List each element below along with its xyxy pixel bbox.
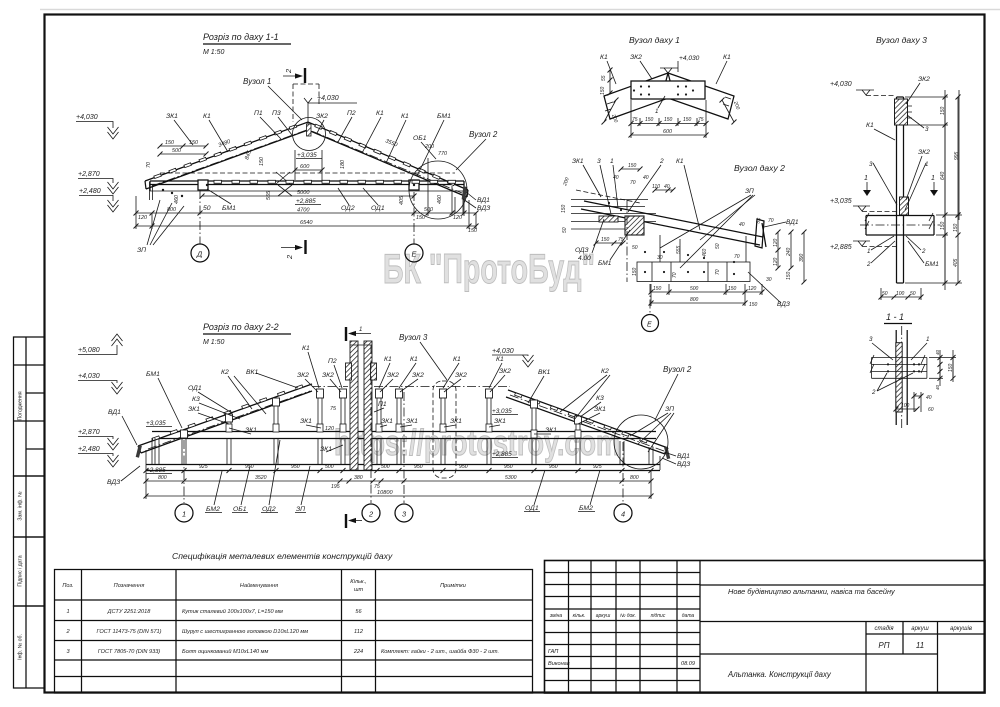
svg-text:ВДЗ: ВДЗ: [677, 461, 691, 468]
svg-text:ЗК1: ЗК1: [166, 113, 178, 120]
svg-text:ЗК2: ЗК2: [918, 149, 930, 156]
svg-text:К1: К1: [203, 113, 211, 120]
svg-text:150: 150: [940, 221, 946, 230]
svg-text:4700: 4700: [297, 208, 310, 214]
svg-text:+4,030: +4,030: [78, 373, 100, 380]
svg-text:№ док.: № док.: [620, 613, 636, 619]
svg-text:ВД1: ВД1: [108, 409, 121, 416]
svg-text:ЗП: ЗП: [137, 247, 146, 254]
svg-text:120: 120: [773, 238, 779, 247]
svg-text:Найменування: Найменування: [240, 582, 278, 589]
svg-text:70: 70: [146, 162, 152, 168]
svg-text:Інф. № об.: Інф. № об.: [18, 634, 24, 660]
svg-text:РП: РП: [878, 641, 889, 650]
svg-text:ЗК1: ЗК1: [572, 158, 584, 165]
svg-text:Поз.: Поз.: [62, 583, 73, 589]
svg-text:75: 75: [618, 237, 624, 243]
svg-text:К1: К1: [384, 356, 392, 363]
svg-text:ОД1: ОД1: [371, 205, 385, 212]
svg-text:ВК1: ВК1: [246, 369, 259, 376]
svg-text:500: 500: [172, 148, 181, 154]
svg-text:500: 500: [690, 286, 699, 292]
svg-text:4: 4: [621, 510, 625, 519]
svg-text:ЗК1: ЗК1: [406, 418, 418, 425]
svg-text:150: 150: [645, 117, 654, 123]
svg-text:150: 150: [749, 302, 758, 308]
svg-text:+3,035: +3,035: [830, 198, 852, 205]
svg-text:120: 120: [138, 215, 147, 221]
svg-text:+3,035: +3,035: [492, 408, 512, 415]
svg-text:3: 3: [869, 336, 873, 343]
svg-text:40: 40: [935, 349, 940, 355]
svg-text:ГАП: ГАП: [548, 649, 559, 655]
svg-text:100: 100: [901, 403, 910, 409]
svg-text:+5,080: +5,080: [78, 347, 100, 354]
svg-text:П2: П2: [347, 110, 356, 117]
svg-text:К2: К2: [221, 369, 229, 376]
svg-text:150: 150: [468, 228, 477, 234]
svg-text:3: 3: [66, 649, 70, 655]
svg-text:150: 150: [653, 286, 662, 292]
svg-text:ГОСТ 7805-70 (DIN 933): ГОСТ 7805-70 (DIN 933): [98, 649, 160, 655]
svg-text:ЗК1: ЗК1: [545, 427, 557, 434]
svg-text:5000: 5000: [297, 190, 310, 196]
svg-text:1: 1: [867, 248, 870, 255]
svg-text:ЗК1: ЗК1: [300, 418, 312, 425]
svg-text:460: 460: [174, 195, 180, 204]
svg-text:ЗК2: ЗК2: [322, 372, 334, 379]
svg-text:30: 30: [657, 255, 663, 261]
svg-text:500: 500: [381, 464, 390, 470]
svg-text:М 1:50: М 1:50: [203, 339, 225, 346]
svg-text:ЗК2: ЗК2: [412, 372, 424, 379]
svg-text:70: 70: [672, 272, 678, 278]
svg-text:Вузол даху 1: Вузол даху 1: [629, 35, 680, 45]
svg-text:500: 500: [424, 207, 433, 213]
svg-text:380: 380: [354, 475, 363, 481]
svg-text:шт: шт: [354, 587, 364, 593]
svg-text:3: 3: [925, 126, 929, 133]
svg-text:ОД2: ОД2: [262, 506, 276, 513]
svg-text:150: 150: [259, 157, 265, 166]
svg-text:180: 180: [340, 160, 346, 169]
svg-text:Вузол 2: Вузол 2: [469, 130, 498, 139]
svg-text:195: 195: [331, 484, 340, 490]
svg-text:Розріз по даху 1-1: Розріз по даху 1-1: [203, 32, 279, 42]
svg-text:ВД1: ВД1: [677, 453, 690, 460]
svg-text:+2,870: +2,870: [78, 171, 100, 178]
svg-text:Вузол 1: Вузол 1: [243, 77, 271, 86]
svg-text:75: 75: [330, 406, 337, 412]
svg-text:Вузол даху 3: Вузол даху 3: [876, 35, 927, 45]
svg-text:ЗК1: ЗК1: [450, 418, 462, 425]
svg-text:800: 800: [158, 475, 167, 481]
svg-text:460: 460: [437, 195, 443, 204]
svg-text:Шуруп с шестигранною головкою: Шуруп с шестигранною головкою D10хL120 м…: [182, 629, 308, 635]
svg-text:40: 40: [739, 222, 745, 228]
svg-text:150: 150: [561, 204, 567, 213]
svg-text:40: 40: [935, 384, 940, 390]
svg-text:75: 75: [698, 117, 704, 123]
svg-text:К1: К1: [302, 345, 310, 352]
svg-text:Е: Е: [412, 250, 417, 259]
svg-text:150: 150: [683, 117, 692, 123]
svg-text:ГОСТ 11473-75 (DIN 571): ГОСТ 11473-75 (DIN 571): [96, 629, 161, 635]
svg-text:2: 2: [65, 629, 70, 635]
svg-text:1: 1: [66, 609, 69, 615]
svg-text:Комплект: гайки - 2 шт., шайба: Комплект: гайки - 2 шт., шайба Ф30 - 2 ш…: [381, 648, 499, 655]
svg-text:30: 30: [766, 277, 772, 283]
svg-text:ЗП: ЗП: [745, 188, 754, 195]
svg-text:Зам. інф. №: Зам. інф. №: [18, 491, 24, 521]
svg-text:150: 150: [601, 237, 610, 243]
svg-text:1: 1: [359, 327, 362, 333]
svg-text:ЗК2: ЗК2: [455, 372, 467, 379]
svg-text:120: 120: [773, 257, 779, 266]
svg-text:+4,030: +4,030: [76, 114, 98, 121]
svg-text:1: 1: [926, 336, 929, 343]
svg-text:120: 120: [453, 215, 462, 221]
svg-text:ОД1: ОД1: [525, 505, 539, 512]
svg-text:460: 460: [702, 248, 708, 257]
svg-text:Підпис і дата: Підпис і дата: [18, 555, 24, 586]
svg-text:240: 240: [786, 247, 792, 257]
svg-text:Специфікація металевих елемент: Специфікація металевих елементів констру…: [172, 551, 393, 561]
svg-text:ЗК1: ЗК1: [381, 418, 393, 425]
svg-text:3: 3: [597, 158, 601, 165]
svg-text:150: 150: [628, 163, 637, 169]
svg-text:4.00: 4.00: [578, 255, 591, 262]
svg-text:+4,030: +4,030: [679, 55, 700, 62]
svg-text:200: 200: [732, 100, 741, 111]
svg-text:600: 600: [663, 129, 672, 135]
svg-text:56: 56: [355, 609, 362, 615]
svg-text:2: 2: [285, 254, 294, 260]
svg-text:Кутик сталевий 100х100х7, L=15: Кутик сталевий 100х100х7, L=150 мм: [182, 608, 283, 615]
svg-text:БМ2: БМ2: [206, 506, 220, 513]
svg-text:995: 995: [954, 151, 960, 160]
svg-text:Е: Е: [647, 322, 652, 329]
svg-text:К1: К1: [676, 158, 684, 165]
svg-text:950: 950: [459, 464, 468, 470]
svg-text:+4,030: +4,030: [492, 348, 514, 355]
svg-text:950: 950: [504, 464, 513, 470]
svg-text:08.09: 08.09: [681, 661, 695, 667]
svg-text:390: 390: [799, 253, 805, 262]
svg-text:800: 800: [690, 297, 699, 303]
svg-text:950: 950: [291, 464, 300, 470]
svg-text:ЗК1: ЗК1: [188, 406, 200, 413]
svg-text:П3: П3: [272, 110, 281, 117]
svg-text:ВД1: ВД1: [786, 219, 799, 226]
svg-text:+2,885: +2,885: [492, 451, 512, 458]
svg-text:150: 150: [600, 86, 606, 95]
svg-text:Альтанка. Конструкції даху: Альтанка. Конструкції даху: [727, 670, 832, 679]
svg-text:ОБ1: ОБ1: [233, 506, 247, 513]
svg-text:112: 112: [354, 629, 364, 635]
svg-text:60: 60: [928, 407, 934, 413]
svg-text:аркуш: аркуш: [911, 626, 929, 632]
svg-text:50: 50: [632, 245, 638, 251]
svg-text:3: 3: [869, 161, 873, 168]
svg-text:150: 150: [664, 117, 673, 123]
svg-text:БМ1: БМ1: [598, 260, 612, 267]
svg-text:Примітки: Примітки: [440, 583, 466, 589]
svg-text:950: 950: [245, 464, 254, 470]
svg-text:5300: 5300: [505, 475, 517, 481]
svg-text:925: 925: [199, 464, 208, 470]
svg-text:150: 150: [728, 286, 737, 292]
svg-text:405: 405: [399, 195, 405, 205]
svg-text:ОД2: ОД2: [341, 205, 355, 212]
svg-text:75: 75: [632, 117, 638, 123]
svg-text:ЗК2: ЗК2: [387, 372, 399, 379]
svg-text:2: 2: [659, 158, 664, 165]
svg-text:40: 40: [664, 184, 670, 190]
svg-text:Вузол 3: Вузол 3: [399, 333, 428, 342]
svg-text:К1: К1: [376, 110, 384, 117]
svg-text:К1: К1: [723, 54, 731, 61]
svg-text:ЗП: ЗП: [296, 506, 305, 513]
svg-text:50: 50: [715, 243, 721, 249]
svg-text:2: 2: [284, 68, 293, 74]
svg-text:+2,885: +2,885: [830, 244, 852, 251]
svg-text:К3: К3: [192, 396, 200, 403]
svg-text:50: 50: [910, 291, 916, 297]
svg-text:Виконав: Виконав: [548, 661, 570, 667]
svg-text:БМ1: БМ1: [222, 205, 236, 212]
svg-text:Кільк.,: Кільк.,: [350, 579, 366, 585]
svg-text:ВД1: ВД1: [477, 197, 490, 204]
svg-text:стадія: стадія: [874, 626, 894, 632]
svg-text:дата: дата: [682, 613, 695, 619]
svg-text:БМ1: БМ1: [925, 261, 939, 268]
svg-text:К1: К1: [453, 356, 461, 363]
svg-text:+3,035: +3,035: [297, 152, 317, 159]
svg-text:К1: К1: [600, 54, 608, 61]
svg-text:ВДЗ: ВДЗ: [777, 301, 790, 308]
svg-text:ЗК1: ЗК1: [594, 406, 606, 413]
svg-text:150: 150: [189, 140, 198, 146]
svg-text:120: 120: [325, 426, 334, 432]
svg-text:150: 150: [632, 267, 638, 276]
svg-text:770: 770: [438, 151, 447, 157]
svg-text:+2,480: +2,480: [78, 446, 100, 453]
svg-text:+2,480: +2,480: [79, 188, 101, 195]
svg-text:200: 200: [424, 144, 434, 150]
svg-text:600: 600: [300, 164, 310, 170]
svg-text:200: 200: [610, 113, 619, 124]
svg-text:ДСТУ 2251:2018: ДСТУ 2251:2018: [107, 609, 152, 615]
svg-text:70: 70: [715, 269, 721, 275]
svg-text:1: 1: [864, 175, 868, 182]
svg-text:150: 150: [940, 106, 946, 115]
svg-text:зміна: зміна: [549, 613, 563, 619]
svg-text:кільк.: кільк.: [573, 613, 586, 619]
svg-text:+2,870: +2,870: [78, 429, 100, 436]
svg-text:ЗК2: ЗК2: [630, 54, 642, 61]
svg-text:+2,885: +2,885: [296, 198, 316, 205]
svg-text:Вузол даху 2: Вузол даху 2: [734, 163, 785, 173]
svg-text:40: 40: [926, 395, 932, 401]
svg-text:ЗК2: ЗК2: [918, 76, 930, 83]
svg-text:100: 100: [896, 291, 905, 297]
svg-text:40: 40: [643, 175, 649, 181]
svg-text:1: 1: [931, 175, 935, 182]
svg-text:55: 55: [601, 75, 607, 81]
svg-text:10800: 10800: [377, 490, 393, 496]
svg-text:ЗК2: ЗК2: [297, 372, 309, 379]
svg-text:Болт оцинкований М10хL140 мм: Болт оцинкований М10хL140 мм: [182, 648, 269, 655]
svg-text:ЗК1: ЗК1: [494, 418, 506, 425]
svg-text:К1: К1: [866, 122, 874, 129]
svg-text:1: 1: [610, 158, 614, 165]
svg-text:1: 1: [655, 108, 658, 115]
svg-text:Вузол 2: Вузол 2: [663, 365, 692, 374]
svg-text:70: 70: [768, 218, 774, 224]
svg-text:50: 50: [562, 227, 568, 233]
svg-text:500: 500: [325, 464, 334, 470]
svg-text:2: 2: [921, 248, 926, 255]
svg-text:2: 2: [368, 510, 373, 519]
svg-text:ВДЗ: ВДЗ: [107, 479, 121, 486]
svg-text:70: 70: [630, 180, 636, 186]
svg-text:925: 925: [593, 464, 602, 470]
svg-text:П1: П1: [378, 401, 387, 408]
svg-text:БМ1: БМ1: [146, 371, 160, 378]
svg-text:+3,035: +3,035: [146, 420, 166, 427]
svg-text:ЗК2: ЗК2: [316, 113, 328, 120]
svg-text:ЗК2: ЗК2: [499, 368, 511, 375]
svg-text:224: 224: [353, 649, 363, 655]
svg-text:К1: К1: [410, 356, 418, 363]
svg-text:К3: К3: [596, 395, 604, 402]
svg-text:К1: К1: [496, 356, 504, 363]
svg-text:ОД1: ОД1: [188, 385, 202, 392]
svg-text:50: 50: [882, 291, 888, 297]
svg-text:аркушів: аркушів: [950, 626, 972, 632]
svg-text:150: 150: [165, 140, 174, 146]
svg-text:ВДЗ: ВДЗ: [477, 205, 491, 212]
svg-text:Позначення: Позначення: [114, 583, 145, 589]
svg-text:120: 120: [748, 286, 757, 292]
svg-text:+4,030: +4,030: [317, 95, 339, 102]
svg-text:11: 11: [916, 641, 924, 650]
svg-text:аркуш: аркуш: [596, 613, 611, 619]
svg-text:555: 555: [266, 190, 272, 200]
svg-text:БМ2: БМ2: [579, 505, 593, 512]
svg-text:П2: П2: [328, 358, 337, 365]
svg-text:70: 70: [734, 254, 740, 260]
svg-text:640: 640: [940, 171, 946, 180]
svg-text:800: 800: [167, 207, 176, 213]
svg-text:К1: К1: [401, 113, 409, 120]
svg-text:М 1:50: М 1:50: [203, 49, 225, 56]
svg-text:3: 3: [402, 510, 407, 519]
svg-text:150: 150: [416, 215, 425, 221]
svg-text:110: 110: [652, 184, 660, 190]
svg-text:6540: 6540: [300, 220, 313, 226]
svg-text:ЗП: ЗП: [665, 406, 674, 413]
svg-text:1: 1: [182, 510, 186, 519]
svg-text:підпис: підпис: [651, 613, 666, 619]
svg-text:3520: 3520: [255, 475, 267, 481]
svg-text:К2: К2: [601, 368, 609, 375]
svg-text:150: 150: [786, 271, 792, 280]
svg-text:Нове будівництво альтанки, нав: Нове будівництво альтанки, навіса та бас…: [728, 587, 896, 596]
svg-text:2: 2: [871, 389, 876, 396]
svg-text:П1: П1: [254, 110, 263, 117]
svg-text:50: 50: [203, 205, 211, 212]
svg-text:555: 555: [676, 245, 682, 254]
svg-text:200: 200: [562, 177, 571, 188]
svg-text:800: 800: [630, 475, 639, 481]
svg-text:Розріз по даху 2-2: Розріз по даху 2-2: [203, 322, 279, 332]
svg-text:Д: Д: [196, 250, 202, 259]
svg-text:БМ1: БМ1: [437, 113, 451, 120]
svg-text:40: 40: [613, 175, 619, 181]
svg-text:+4,030: +4,030: [830, 81, 852, 88]
svg-text:950: 950: [549, 464, 558, 470]
svg-text:1 - 1: 1 - 1: [886, 312, 904, 322]
svg-text:Погодження: Погодження: [18, 391, 24, 420]
svg-text:ВК1: ВК1: [538, 369, 551, 376]
svg-text:2: 2: [866, 261, 871, 268]
svg-text:ОБ1: ОБ1: [413, 135, 427, 142]
svg-text:950: 950: [414, 464, 423, 470]
svg-text:ОДЗ: ОДЗ: [575, 247, 589, 254]
